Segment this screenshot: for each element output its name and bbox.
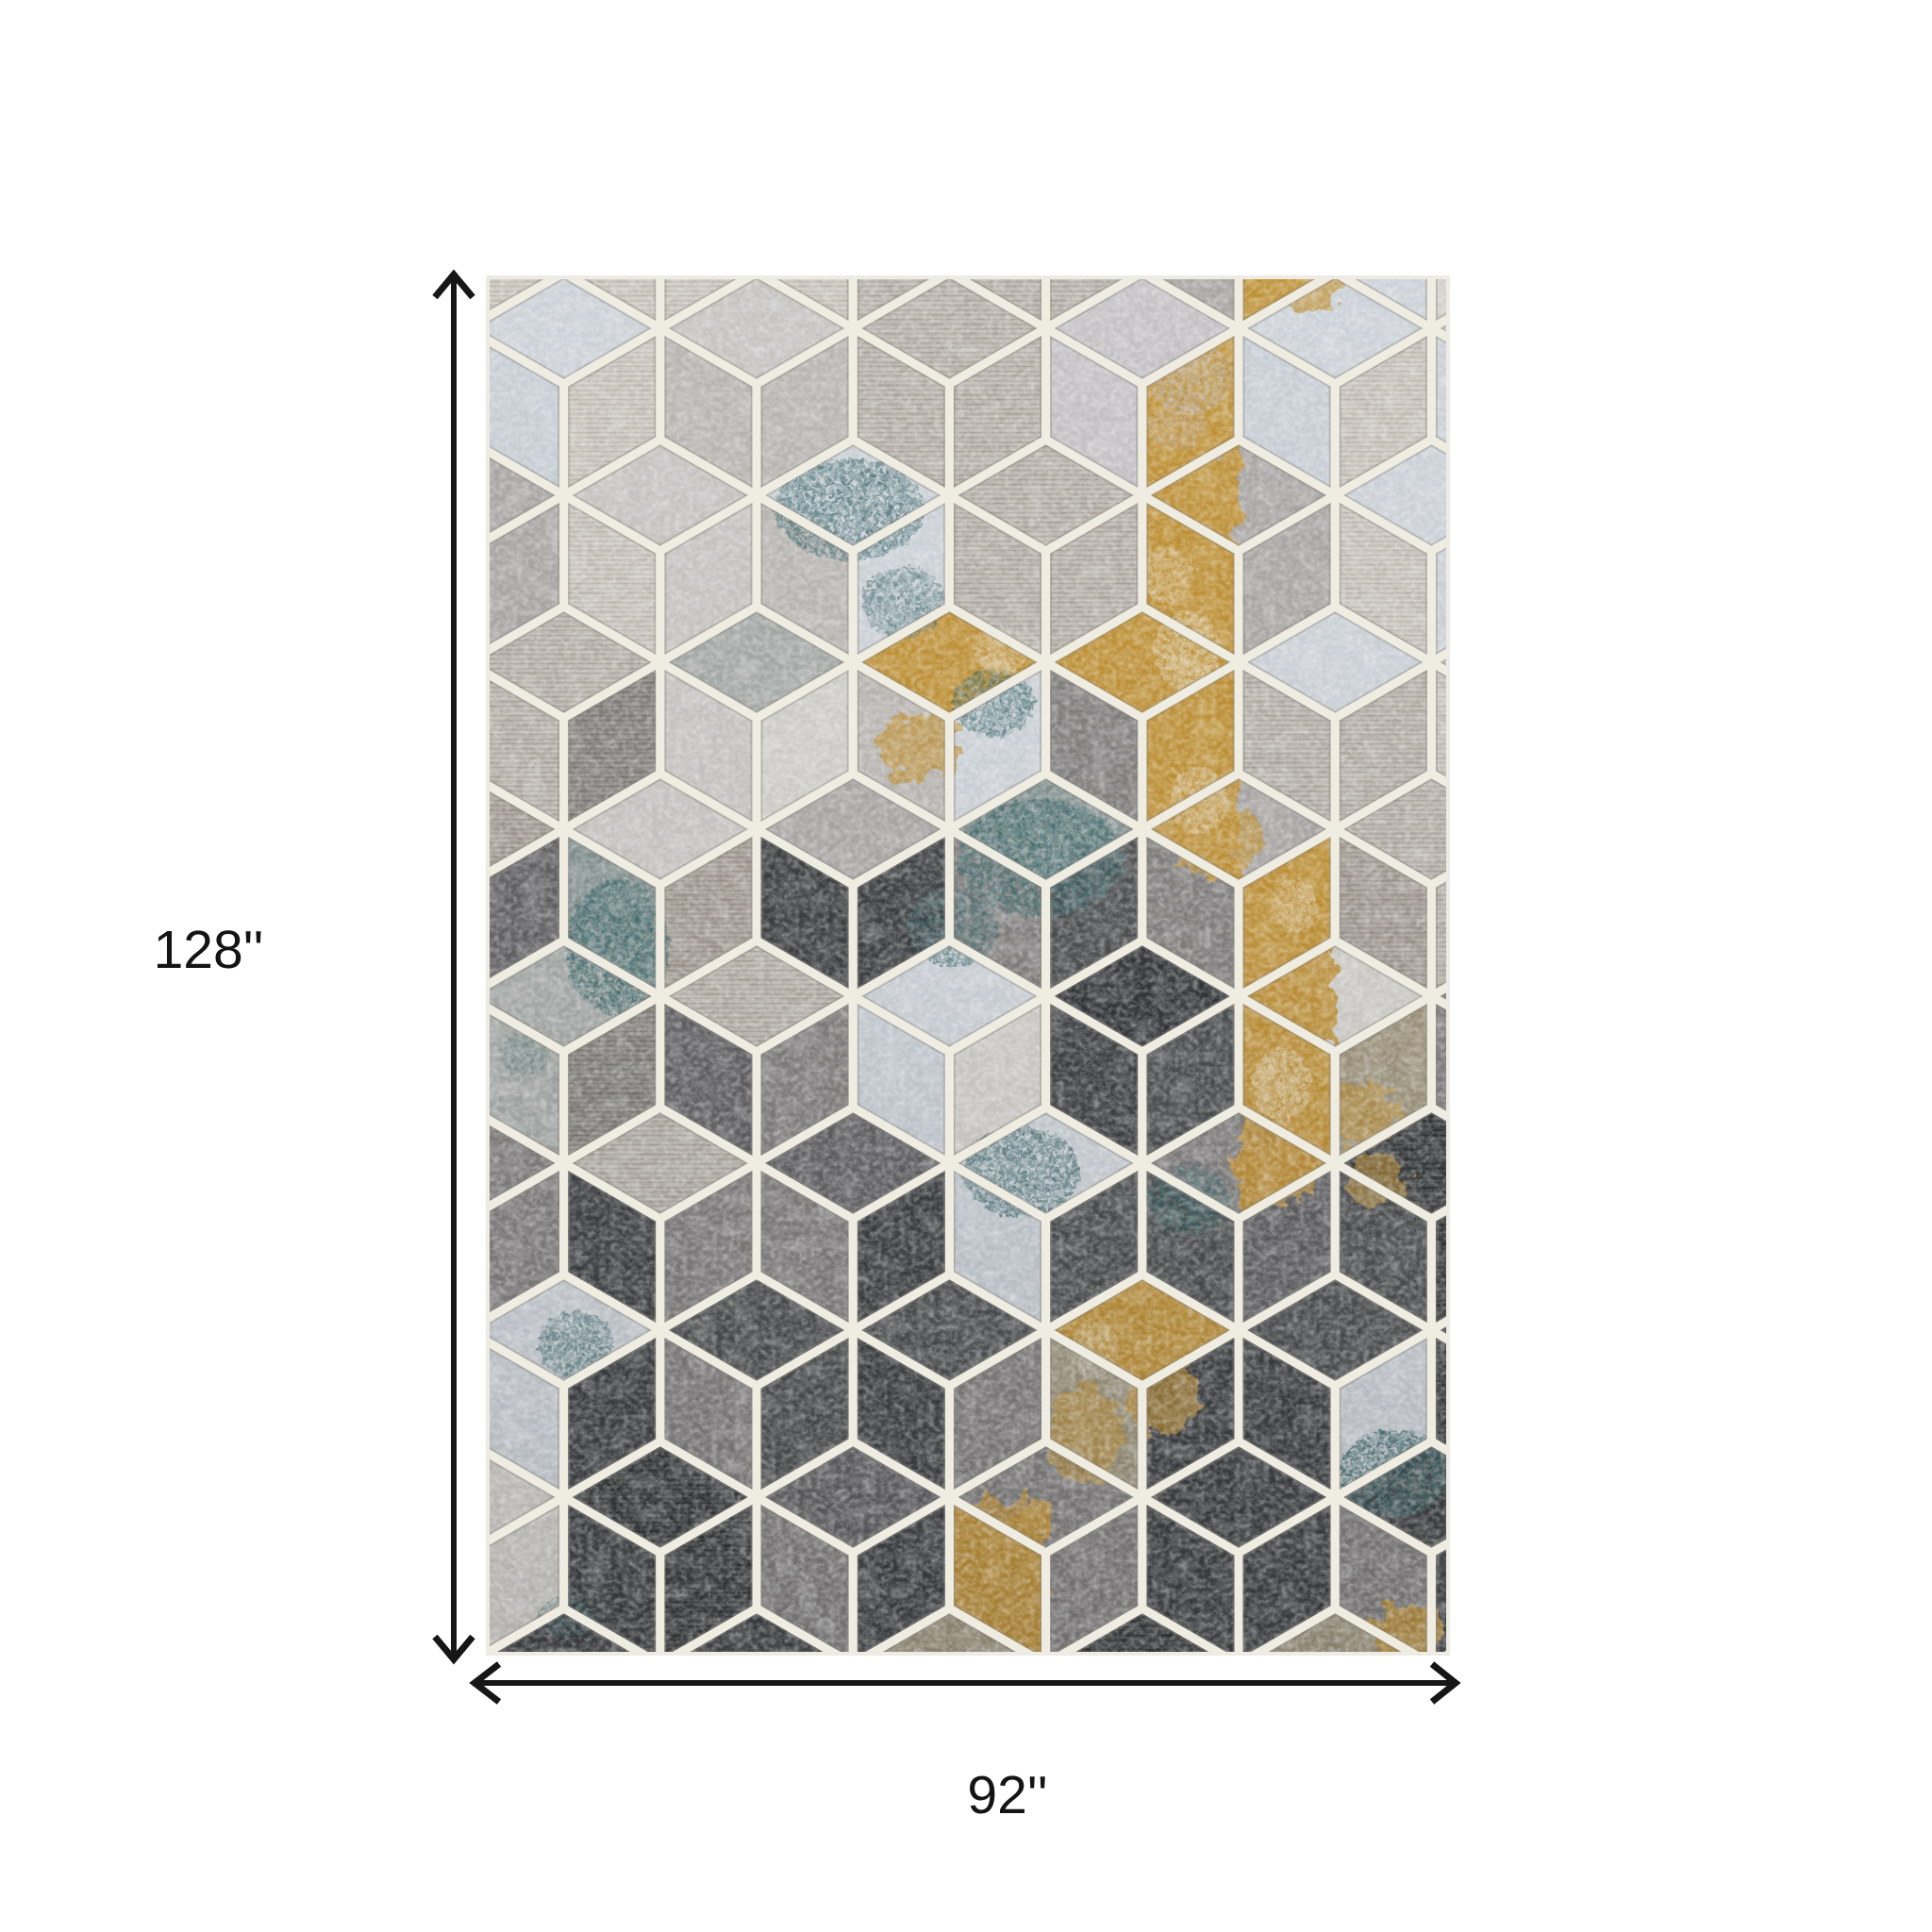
svg-text:128'': 128'' bbox=[154, 920, 264, 980]
svg-text:92'': 92'' bbox=[967, 1765, 1047, 1825]
